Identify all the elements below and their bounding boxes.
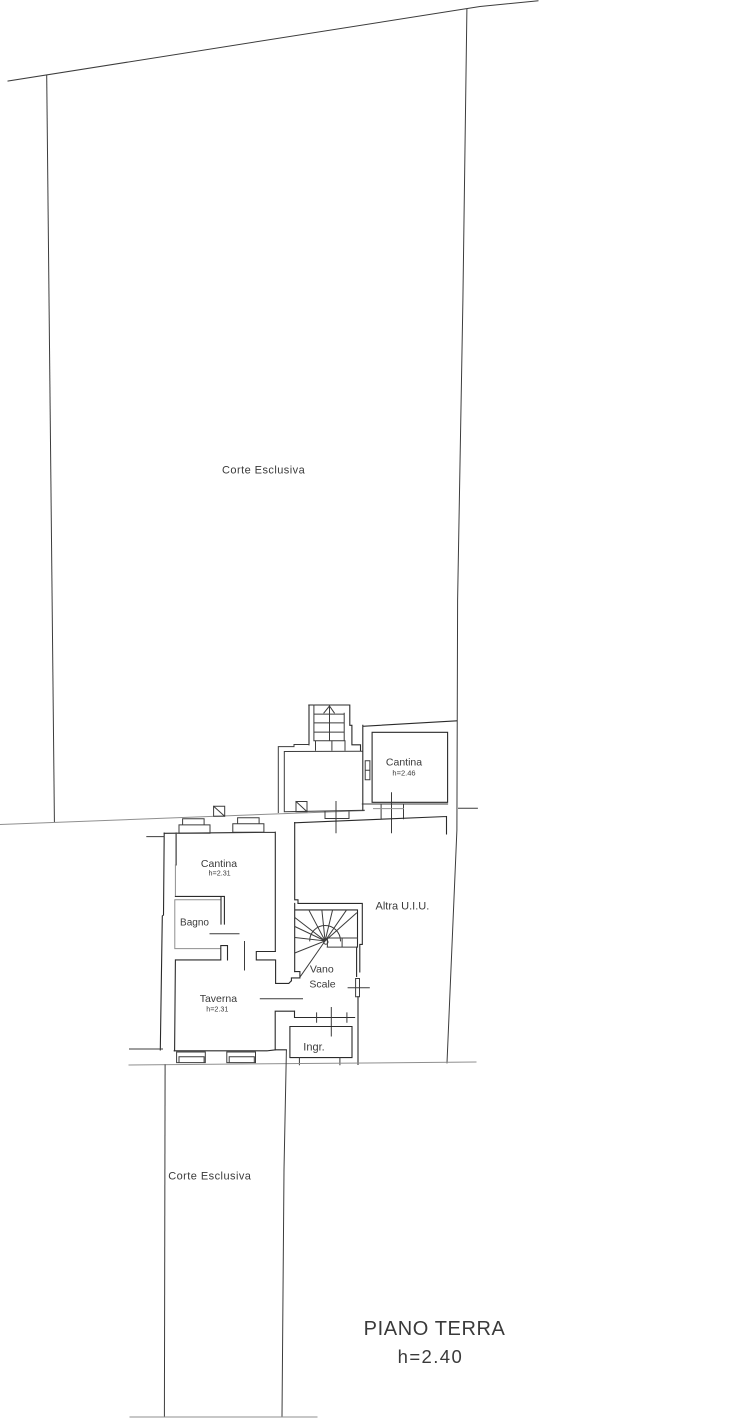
svg-text:Altra U.I.U.: Altra U.I.U. — [376, 900, 430, 912]
svg-text:h=2.31: h=2.31 — [206, 1005, 228, 1014]
svg-text:Ingr.: Ingr. — [303, 1041, 324, 1053]
svg-text:Taverna: Taverna — [200, 993, 238, 1005]
svg-text:Bagno: Bagno — [180, 917, 209, 928]
svg-text:PIANO TERRA: PIANO TERRA — [364, 1318, 506, 1340]
svg-text:Vano: Vano — [310, 964, 334, 976]
svg-text:h=2.40: h=2.40 — [398, 1346, 464, 1367]
svg-text:Cantina: Cantina — [386, 757, 422, 769]
svg-text:Scale: Scale — [309, 978, 335, 990]
svg-text:h=2.46: h=2.46 — [392, 768, 415, 777]
svg-text:Corte Esclusiva: Corte Esclusiva — [168, 1170, 252, 1182]
svg-text:h=2.31: h=2.31 — [209, 868, 231, 877]
svg-text:Corte Esclusiva: Corte Esclusiva — [222, 464, 306, 476]
